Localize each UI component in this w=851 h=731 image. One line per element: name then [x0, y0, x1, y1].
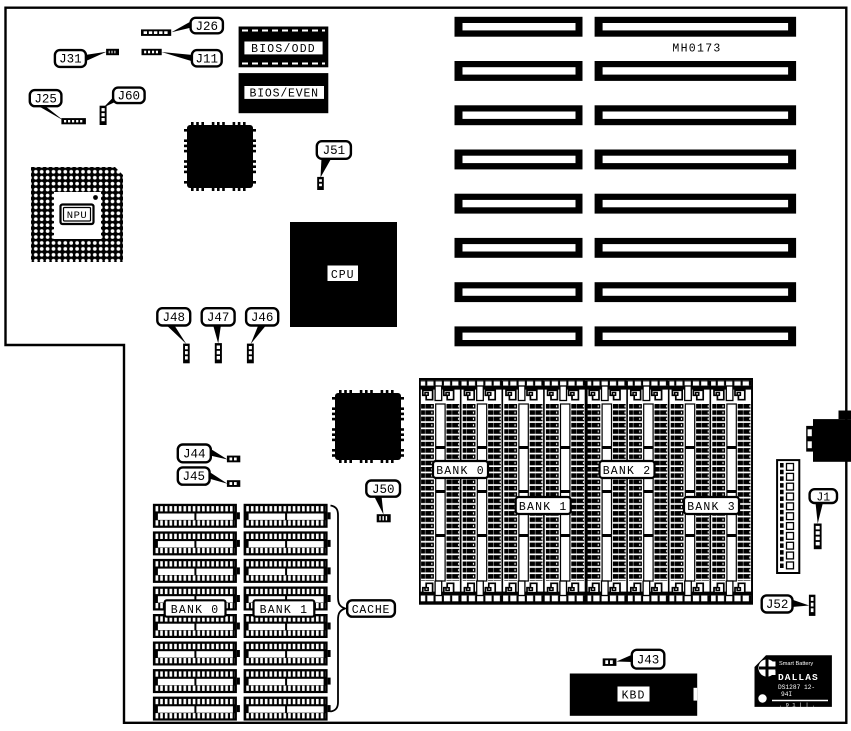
svg-text:MH0173: MH0173 — [672, 43, 721, 56]
svg-text:DALLAS: DALLAS — [778, 672, 819, 683]
svg-text:J31: J31 — [59, 53, 82, 67]
svg-text:J46: J46 — [251, 311, 274, 325]
svg-text:BANK 2: BANK 2 — [603, 465, 652, 478]
svg-text:BIOS/EVEN: BIOS/EVEN — [250, 88, 319, 101]
svg-text:J60: J60 — [118, 90, 141, 104]
svg-text:J11: J11 — [196, 53, 219, 67]
svg-text:BANK 1: BANK 1 — [519, 501, 568, 514]
svg-text:. 9 1 | | .: . 9 1 | | . — [779, 702, 815, 709]
svg-text:BANK 0: BANK 0 — [436, 465, 485, 478]
svg-text:CACHE: CACHE — [352, 604, 391, 617]
svg-text:Smart Battery: Smart Battery — [779, 661, 813, 667]
svg-text:BANK 3: BANK 3 — [687, 501, 736, 514]
svg-text:J47: J47 — [207, 311, 230, 325]
svg-text:J43: J43 — [637, 653, 660, 667]
svg-text:KBD: KBD — [622, 690, 646, 703]
svg-text:DS1287 12-: DS1287 12- — [778, 684, 815, 691]
svg-text:J52: J52 — [766, 598, 789, 612]
svg-text:J48: J48 — [163, 311, 186, 325]
svg-text:J1: J1 — [816, 491, 830, 504]
svg-text:BANK 1: BANK 1 — [260, 604, 309, 617]
svg-text:J25: J25 — [34, 92, 57, 106]
svg-text:J26: J26 — [196, 20, 219, 34]
svg-text:J45: J45 — [182, 470, 205, 484]
svg-text:CPU: CPU — [331, 269, 355, 282]
svg-text:BIOS/ODD: BIOS/ODD — [251, 43, 316, 56]
svg-text:94I: 94I — [781, 691, 792, 698]
svg-text:J50: J50 — [372, 483, 395, 497]
svg-text:BANK 0: BANK 0 — [171, 604, 220, 617]
svg-text:J51: J51 — [323, 144, 346, 158]
svg-text:NPU: NPU — [67, 210, 87, 222]
svg-text:J44: J44 — [183, 448, 206, 462]
